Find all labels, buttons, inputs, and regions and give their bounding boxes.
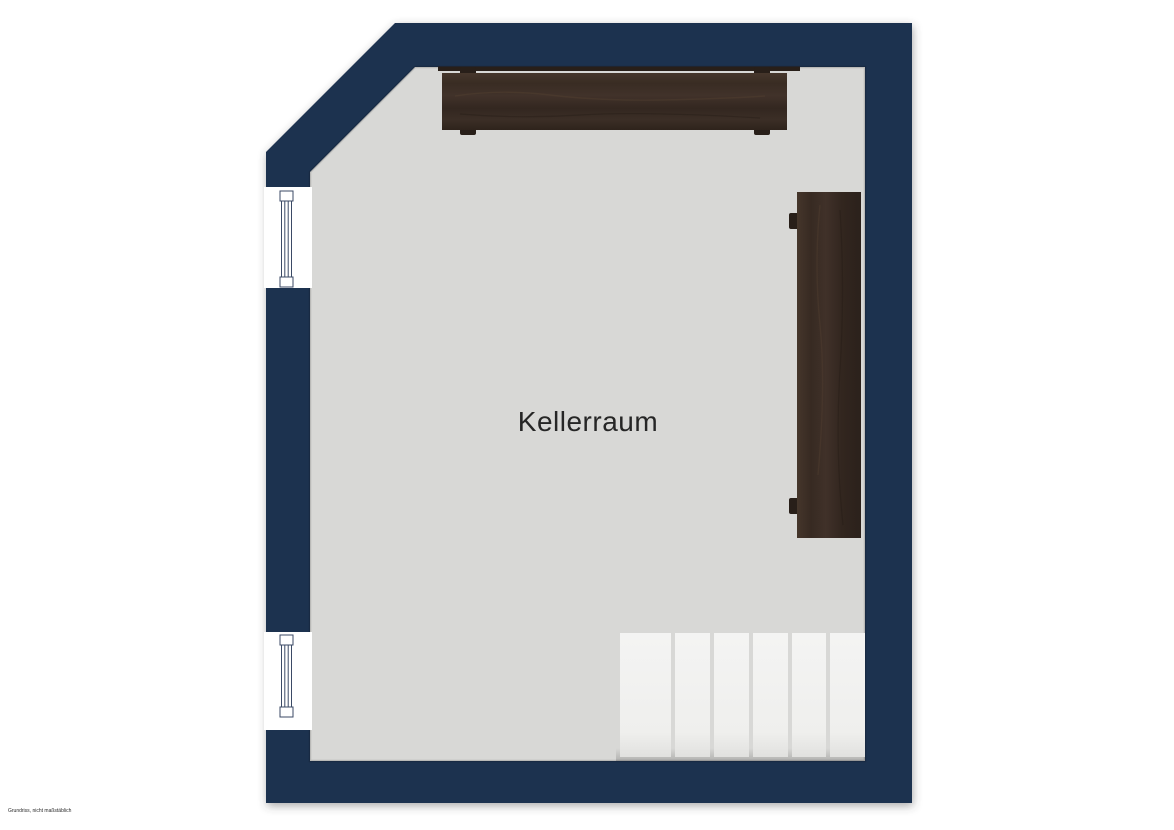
window-frame-box xyxy=(280,191,293,201)
plan-footnote: Grundriss, nicht maßstäblich xyxy=(8,808,71,814)
shelf-body xyxy=(797,192,861,538)
stair-step xyxy=(792,633,826,757)
sideboard-body xyxy=(442,73,787,130)
window-frame-box xyxy=(280,277,293,287)
window-pane xyxy=(282,645,292,717)
window-frame-box xyxy=(280,707,293,717)
window-upper-left xyxy=(264,187,312,288)
stair-step xyxy=(753,633,788,757)
stair-step xyxy=(830,633,865,757)
stair-step xyxy=(675,633,710,757)
window-frame-box xyxy=(280,635,293,645)
sideboard-top-wall xyxy=(438,67,800,136)
sideboard-rail xyxy=(438,67,800,72)
shelf-right-wall xyxy=(789,192,861,538)
floor-plan-canvas: Kellerraum xyxy=(0,0,1174,830)
floor-plan-page: Kellerraum Grundriss, nicht maßstäblich xyxy=(0,0,1174,830)
stair-step xyxy=(714,633,749,757)
stair-step xyxy=(620,633,671,757)
window-pane xyxy=(282,201,292,277)
window-lower-left xyxy=(264,632,312,730)
room-label: Kellerraum xyxy=(518,406,658,437)
